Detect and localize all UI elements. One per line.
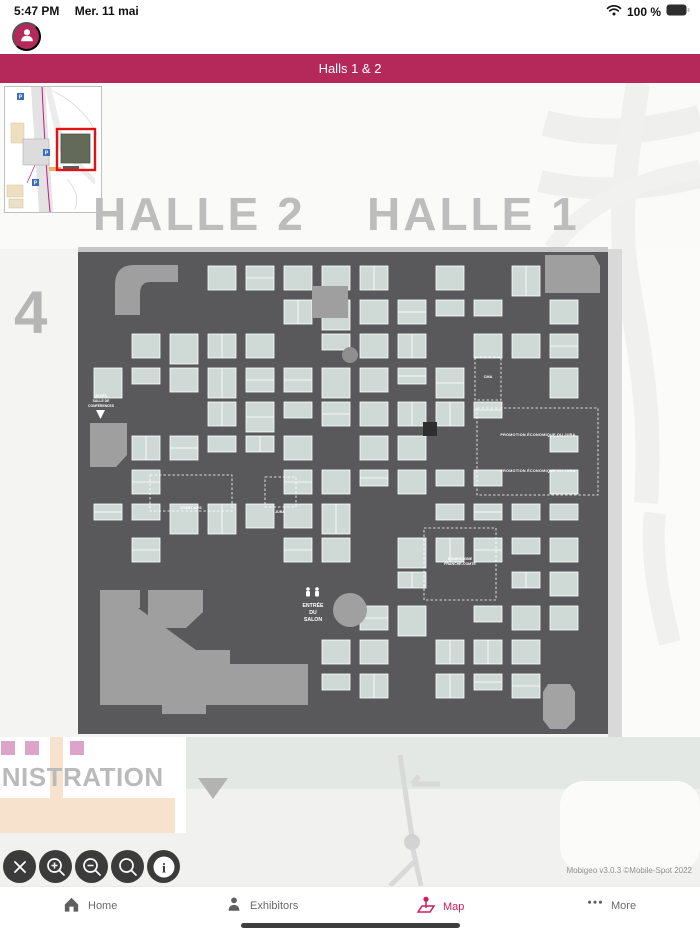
nav-tab-more[interactable]: More [586, 895, 636, 916]
booth[interactable] [398, 538, 426, 568]
booth[interactable] [322, 674, 350, 690]
booth[interactable] [322, 368, 350, 398]
booth[interactable] [360, 402, 388, 426]
booth[interactable] [284, 402, 312, 418]
hall-1-caption: HALLE 1 [367, 187, 580, 241]
booth[interactable] [550, 470, 578, 494]
booth[interactable] [550, 606, 578, 630]
status-time: 5:47 PM [14, 4, 59, 18]
booth[interactable] [170, 368, 198, 392]
booth[interactable] [436, 300, 464, 316]
svg-text:P: P [34, 181, 38, 187]
booth[interactable] [474, 470, 502, 486]
svg-text:DU: DU [309, 610, 317, 616]
floor-plan[interactable]: ENTRÉE DU SALON ACCÈS SALLE DE CONFÉRENC… [78, 252, 608, 734]
svg-text:P: P [45, 151, 49, 157]
dark-booth[interactable] [423, 422, 437, 436]
booth[interactable] [474, 334, 502, 358]
booth[interactable] [360, 640, 388, 664]
minimap[interactable]: P P P [4, 86, 102, 213]
column-circle-small [342, 347, 358, 363]
booth[interactable] [360, 368, 388, 392]
map-icon [416, 895, 436, 918]
close-button[interactable] [3, 850, 36, 883]
booth[interactable] [550, 436, 578, 452]
entrance-label: ENTRÉE [302, 601, 324, 609]
booth[interactable] [512, 538, 540, 554]
booth[interactable] [436, 470, 464, 486]
booth[interactable] [360, 436, 388, 460]
person-icon [18, 26, 36, 47]
booth[interactable] [322, 640, 350, 664]
minimap-graphic: P P P [5, 87, 101, 212]
booth[interactable] [398, 436, 426, 460]
status-bar: 5:47 PM Mer. 11 mai 100 % [0, 0, 700, 22]
booth[interactable] [284, 266, 312, 290]
booth[interactable] [550, 504, 578, 520]
bottom-nav: Home Exhibitors Map More [0, 886, 700, 934]
promotion-label-bottom: PROMOTION ÉCONOMIQUE DU JURA [500, 468, 575, 473]
info-icon: i [148, 851, 180, 883]
startups-label: START-UPS [180, 506, 202, 510]
booth[interactable] [284, 436, 312, 460]
zoom-in-icon [40, 851, 72, 883]
booth[interactable] [246, 504, 274, 528]
booth[interactable] [246, 334, 274, 358]
svg-text:i: i [162, 861, 166, 876]
profile-button[interactable] [12, 22, 41, 51]
info-button[interactable]: i [147, 850, 180, 883]
booth[interactable] [512, 334, 540, 358]
close-icon [4, 851, 36, 883]
copyright-text: Mobigeo v3.0.3 ©Mobile-Spot 2022 [566, 866, 692, 875]
booth[interactable] [512, 504, 540, 520]
search-icon [112, 851, 144, 883]
booth[interactable] [322, 538, 350, 562]
svg-text:SALON: SALON [304, 617, 322, 623]
cma-label: CMA [484, 375, 493, 379]
search-button[interactable] [111, 850, 144, 883]
booth[interactable] [550, 572, 578, 596]
bourgogne-label: BOURGOGNE [448, 557, 473, 561]
booth[interactable] [436, 504, 464, 520]
booth[interactable] [322, 470, 350, 494]
svg-text:SALLE DE: SALLE DE [93, 399, 111, 403]
conference-label: ACCÈS [95, 393, 108, 398]
promotion-label-top: PROMOTION ÉCONOMIQUE DU JURA [500, 432, 575, 437]
header-bar: Halls 1 & 2 [0, 54, 700, 83]
booth[interactable] [360, 300, 388, 324]
svg-text:P: P [19, 95, 23, 101]
booth[interactable] [436, 266, 464, 290]
page-title: Halls 1 & 2 [319, 61, 382, 76]
booth[interactable] [284, 504, 312, 528]
booth[interactable] [208, 266, 236, 290]
booth[interactable] [322, 334, 350, 350]
current-hall-footprint [61, 134, 90, 163]
nav-tab-exhibitors[interactable]: Exhibitors [225, 895, 298, 916]
wifi-icon [606, 4, 622, 19]
booth[interactable] [512, 640, 540, 664]
home-indicator[interactable] [241, 923, 460, 928]
zoom-in-button[interactable] [39, 850, 72, 883]
more-icon [586, 895, 604, 916]
zoom-out-icon [76, 851, 108, 883]
booth[interactable] [170, 334, 198, 364]
booth[interactable] [550, 300, 578, 324]
status-date: Mer. 11 mai [75, 4, 139, 18]
exhibitors-icon [225, 895, 243, 916]
booth[interactable] [208, 436, 236, 452]
booth[interactable] [512, 606, 540, 630]
hall-2-caption: HALLE 2 [93, 187, 306, 241]
zone-4-caption: 4 [14, 278, 47, 347]
booth[interactable] [132, 504, 160, 520]
nav-tab-home[interactable]: Home [62, 895, 117, 917]
booth[interactable] [474, 300, 502, 316]
svg-text:FRANCHE-COMTÉ: FRANCHE-COMTÉ [444, 561, 476, 566]
map-canvas[interactable]: ENTRÉE DU SALON ACCÈS SALLE DE CONFÉRENC… [0, 83, 700, 886]
conference-access-area [90, 423, 127, 467]
column-circle [333, 593, 367, 627]
svg-text:CONFÉRENCES: CONFÉRENCES [88, 403, 115, 408]
booth[interactable] [550, 368, 578, 398]
zoom-out-button[interactable] [75, 850, 108, 883]
administration-caption: INISTRATION [0, 762, 164, 793]
jura-label: JURA [275, 510, 285, 514]
home-icon [62, 895, 81, 917]
booth[interactable] [132, 368, 160, 384]
booth[interactable] [550, 538, 578, 562]
battery-percent: 100 % [627, 5, 661, 19]
booth[interactable] [398, 606, 426, 636]
nav-tab-map[interactable]: Map [416, 895, 464, 918]
booth[interactable] [132, 334, 160, 358]
map-toolbar: i [3, 850, 180, 883]
booth[interactable] [360, 334, 388, 358]
battery-icon [666, 4, 690, 19]
booth[interactable] [398, 470, 426, 494]
booth[interactable] [474, 606, 502, 622]
